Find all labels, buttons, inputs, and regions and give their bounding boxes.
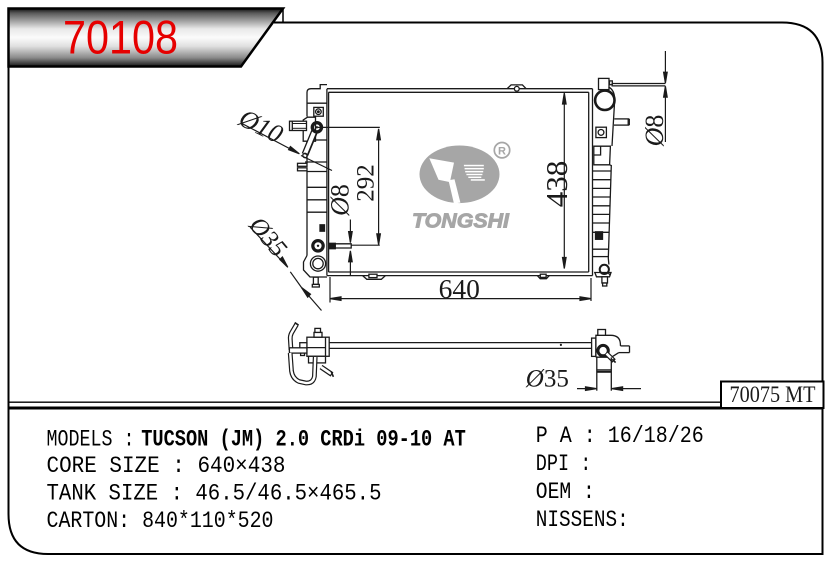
- svg-text:CARTON: 840*110*520: CARTON: 840*110*520: [47, 508, 274, 534]
- svg-text:70108: 70108: [63, 11, 178, 64]
- svg-text:TUCSON (JM) 2.0 CRDi 09-10 AT: TUCSON (JM) 2.0 CRDi 09-10 AT: [141, 427, 466, 453]
- svg-text:Ø8: Ø8: [640, 115, 669, 148]
- svg-text:Ø35: Ø35: [243, 211, 292, 262]
- svg-text:TONGSHI: TONGSHI: [412, 211, 509, 233]
- svg-text:P A : 16/18/26: P A : 16/18/26: [536, 423, 704, 449]
- svg-text:Ø35: Ø35: [525, 366, 569, 393]
- svg-text:Ø8: Ø8: [326, 184, 355, 217]
- svg-text:640: 640: [439, 273, 480, 304]
- svg-text:NISSENS:: NISSENS:: [536, 507, 629, 533]
- svg-text:292: 292: [353, 164, 380, 202]
- svg-text:R: R: [498, 145, 506, 157]
- svg-text:Ø10: Ø10: [234, 103, 288, 149]
- svg-text:MODELS :: MODELS :: [47, 427, 135, 453]
- svg-text:DPI :: DPI :: [536, 451, 592, 477]
- svg-text:70075 MT: 70075 MT: [730, 382, 816, 407]
- svg-text:OEM :: OEM :: [536, 479, 595, 505]
- svg-text:438: 438: [539, 161, 574, 208]
- svg-text:TANK SIZE : 46.5/46.5×465.5: TANK SIZE : 46.5/46.5×465.5: [47, 481, 382, 507]
- svg-text:CORE SIZE : 640×438: CORE SIZE : 640×438: [47, 453, 286, 479]
